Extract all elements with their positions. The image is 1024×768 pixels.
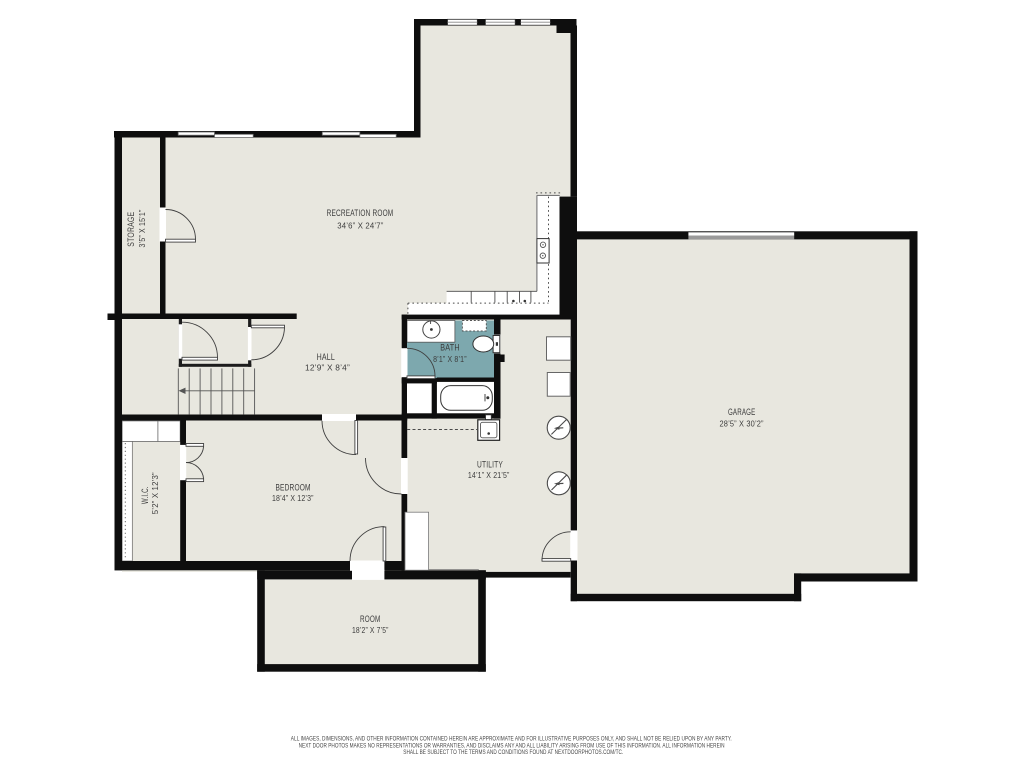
svg-text:HALL: HALL [317,352,335,362]
svg-text:STORAGE: STORAGE [126,212,136,247]
svg-text:14’1” X 21’5”: 14’1” X 21’5” [468,470,510,480]
svg-text:12’9” X 8’4”: 12’9” X 8’4” [305,362,350,372]
svg-text:28’5” X 30’2”: 28’5” X 30’2” [720,418,764,428]
svg-text:34’6” X 24’7”: 34’6” X 24’7” [337,221,383,231]
svg-text:18’2” X 7’5”: 18’2” X 7’5” [352,625,389,635]
svg-text:SHALL BE SUBJECT TO THE TERMS: SHALL BE SUBJECT TO THE TERMS AND CONDIT… [403,749,623,756]
svg-text:18’4” X 12’3”: 18’4” X 12’3” [272,493,314,503]
svg-text:ROOM: ROOM [360,614,381,624]
svg-text:5’2” X 12’3”: 5’2” X 12’3” [150,472,160,514]
svg-text:RECREATION ROOM: RECREATION ROOM [327,208,394,218]
svg-text:BEDROOM: BEDROOM [276,483,311,493]
svg-text:UTILITY: UTILITY [477,460,503,470]
svg-text:GARAGE: GARAGE [728,407,756,417]
svg-text:8’1” X 8’1”: 8’1” X 8’1” [433,354,467,364]
svg-text:BATH: BATH [440,343,459,353]
svg-text:3’5” X 15’1”: 3’5” X 15’1” [137,210,147,248]
svg-text:W.I.C.: W.I.C. [140,486,150,504]
